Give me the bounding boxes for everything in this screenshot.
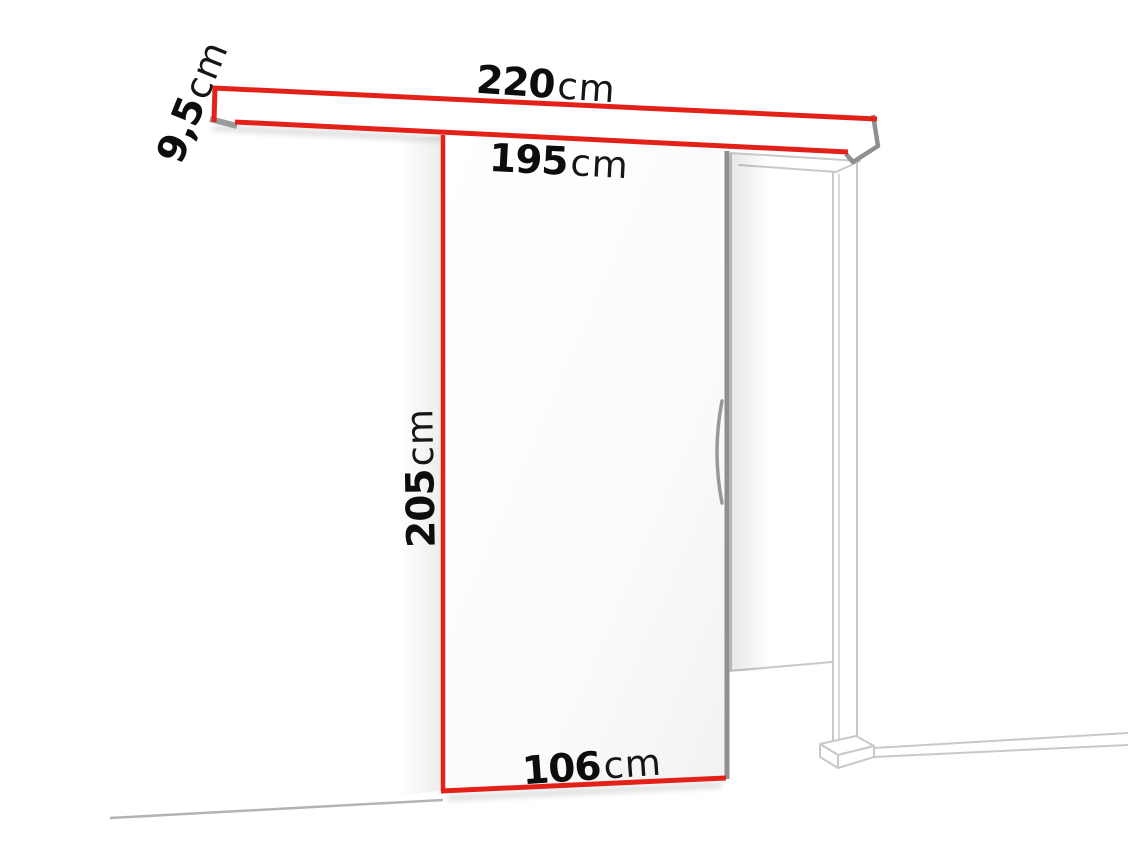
diagram-canvas: 220cm 195cm 9,5cm 205cm 106cm	[0, 0, 1128, 846]
door-face	[443, 135, 727, 791]
clear-width-unit: cm	[569, 141, 630, 187]
dimension-label-door-height: 205cm	[400, 408, 441, 548]
dimension-label-door-width: 106cm	[521, 743, 663, 792]
door-height-value: 205	[398, 469, 444, 548]
clear-width-value: 195	[488, 136, 569, 185]
dimension-label-rail-length: 220cm	[475, 61, 617, 110]
floor-line	[110, 800, 443, 818]
rail-length-value: 220	[475, 58, 556, 108]
rail-length-unit: cm	[556, 64, 617, 111]
dimension-label-clear-width: 195cm	[488, 139, 630, 185]
door-width-value: 106	[521, 744, 602, 794]
frame-plinth	[820, 736, 874, 768]
skirting-board	[874, 733, 1128, 757]
door-width-unit: cm	[602, 741, 663, 788]
door-height-unit: cm	[398, 408, 442, 467]
door-panel	[441, 135, 727, 791]
door-right-shadow	[729, 153, 770, 671]
